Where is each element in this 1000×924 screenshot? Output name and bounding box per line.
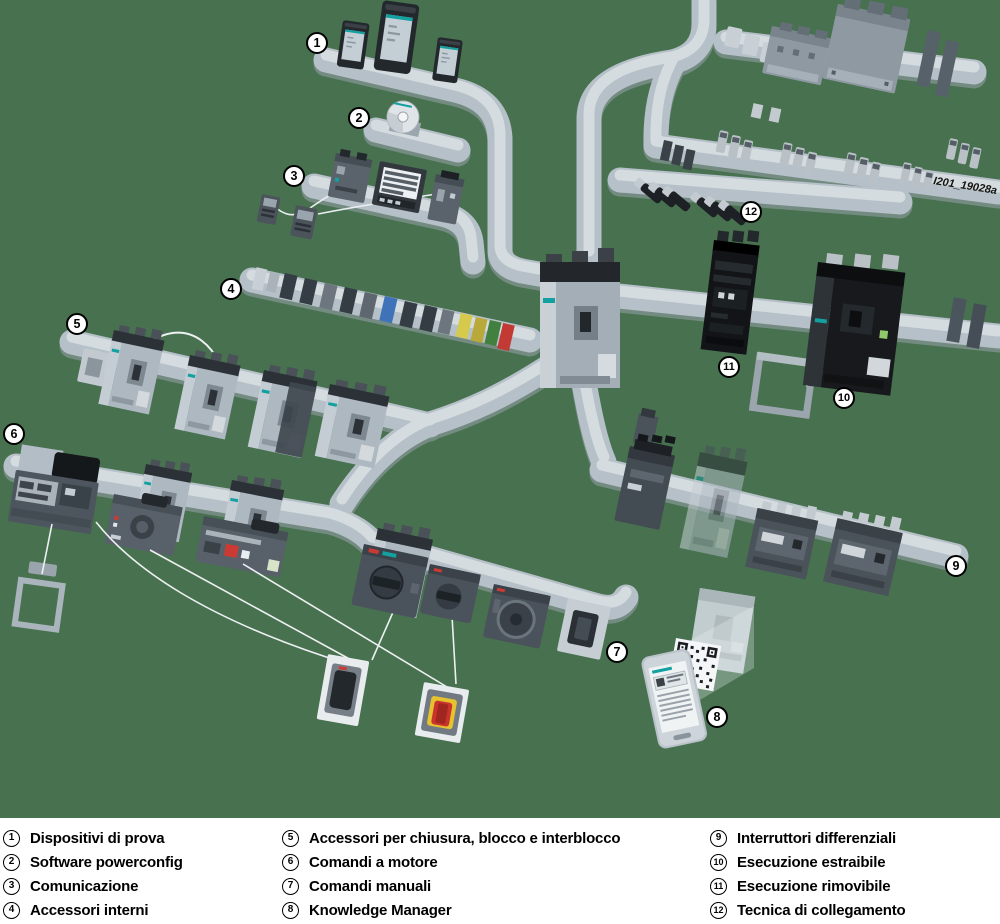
door-handle-black xyxy=(317,654,370,726)
legend-number-badge: 5 xyxy=(282,830,299,847)
legend-number-badge: 9 xyxy=(710,830,727,847)
withdrawable-unit xyxy=(750,246,987,415)
callout-2: 2 xyxy=(348,107,370,129)
legend-number-badge: 1 xyxy=(3,830,20,847)
legend-label: Dispositivi di prova xyxy=(30,830,164,847)
legend-column-3: 9Interruttori differenziali 10Esecuzione… xyxy=(710,826,906,922)
legend-label: Comandi a motore xyxy=(309,854,437,871)
legend-item-3: 3Comunicazione xyxy=(3,874,183,898)
leg​end-label: Accessori per chiusura, blocco e interbl… xyxy=(309,830,620,847)
legend-item-10: 10Esecuzione estraibile xyxy=(710,850,906,874)
legend-number-badge: 3 xyxy=(3,878,20,895)
legend-number-badge: 4 xyxy=(3,902,20,919)
legend-number-badge: 8 xyxy=(282,902,299,919)
internal-accessories xyxy=(252,267,515,351)
legend-number-badge: 7 xyxy=(282,878,299,895)
callout-8: 8 xyxy=(706,706,728,728)
illustration-canvas: I201_19028a xyxy=(0,0,1000,820)
isometric-illustration: I201_19028a 1 2 3 4 5 6 7 8 9 10 11 12 xyxy=(0,0,1000,820)
legend-item-8: 8Knowledge Manager xyxy=(282,898,620,922)
callout-6: 6 xyxy=(3,423,25,445)
legend-item-1: 1Dispositivi di prova xyxy=(3,826,183,850)
main-breaker xyxy=(540,248,620,388)
callout-3: 3 xyxy=(283,165,305,187)
legend-column-2: 5Accessori per chiusura, blocco e interb… xyxy=(282,826,620,922)
callout-9: 9 xyxy=(945,555,967,577)
legend-item-12: 12Tecnica di collegamento xyxy=(710,898,906,922)
legend-number-badge: 10 xyxy=(710,854,727,871)
locking-accessories xyxy=(77,321,391,469)
legend-label: Software powerconfig xyxy=(30,854,183,871)
legend-number-badge: 6 xyxy=(282,854,299,871)
legend-label: Tecnica di collegamento xyxy=(737,902,906,919)
callout-7: 7 xyxy=(606,641,628,663)
legend-number-badge: 11 xyxy=(710,878,727,895)
legend-label: Interruttori differenziali xyxy=(737,830,896,847)
legend-item-7: 7Comandi manuali xyxy=(282,874,620,898)
legend-label: Knowledge Manager xyxy=(309,902,451,919)
legend-item-5: 5Accessori per chiusura, blocco e interb… xyxy=(282,826,620,850)
callout-5: 5 xyxy=(66,313,88,335)
callout-4: 4 xyxy=(220,278,242,300)
legend-column-1: 1Dispositivi di prova 2Software powercon… xyxy=(3,826,183,922)
legend-item-2: 2Software powerconfig xyxy=(3,850,183,874)
legend-item-6: 6Comandi a motore xyxy=(282,850,620,874)
callout-11: 11 xyxy=(718,356,740,378)
callout-10: 10 xyxy=(833,387,855,409)
legend-label: Comunicazione xyxy=(30,878,138,895)
catalog-figure: I201_19028a 1 2 3 4 5 6 7 8 9 10 11 12 1… xyxy=(0,0,1000,924)
legend-label: Esecuzione rimovibile xyxy=(737,878,890,895)
legend-item-9: 9Interruttori differenziali xyxy=(710,826,906,850)
legend-label: Esecuzione estraibile xyxy=(737,854,885,871)
callout-1: 1 xyxy=(306,32,328,54)
callout-12: 12 xyxy=(740,201,762,223)
legend-label: Comandi manuali xyxy=(309,878,431,895)
knowledge-manager xyxy=(640,588,755,750)
plug-in-unit xyxy=(701,226,762,355)
legend-item-11: 11Esecuzione rimovibile xyxy=(710,874,906,898)
legend-number-badge: 12 xyxy=(710,902,727,919)
legend-number-badge: 2 xyxy=(3,854,20,871)
legend-item-4: 4Accessori interni xyxy=(3,898,183,922)
legend: 1Dispositivi di prova 2Software powercon… xyxy=(0,818,1000,924)
legend-label: Accessori interni xyxy=(30,902,148,919)
emergency-handle-red xyxy=(415,682,470,743)
